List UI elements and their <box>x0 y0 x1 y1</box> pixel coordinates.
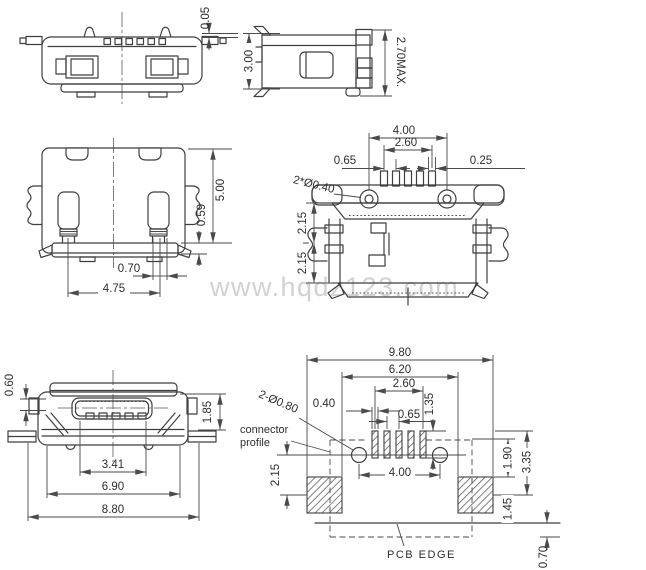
base-plate <box>52 243 178 257</box>
label-profile-line1: connector <box>240 424 289 436</box>
mount-foot <box>39 245 52 258</box>
dim-label-inner-width: 6.20 <box>389 364 411 376</box>
view-c-rear-elevation: 5.00 0.59 0.70 4.75 <box>27 138 232 297</box>
front-lip <box>332 203 484 219</box>
shield-clip <box>371 223 386 233</box>
dim-label-opening-height: 1.85 <box>202 401 214 423</box>
dim-label-upper: 2.15 <box>297 212 309 234</box>
smt-pin <box>417 171 424 186</box>
label-pcb-edge-text: PCB EDGE <box>387 549 456 561</box>
drawing-sheet: www.hqdz123.com 0.05 <box>0 0 646 570</box>
view-e-front-elevation: 0.60 1.85 3.41 6.90 8.80 <box>4 370 226 521</box>
signal-pad <box>408 431 414 458</box>
dim-0.25: 0.25 <box>417 155 525 170</box>
smt-pin <box>429 171 436 186</box>
dim-1.45: 1.45 <box>502 495 515 523</box>
dim-label-pin-span: 2.60 <box>395 137 417 149</box>
label-profile-line2: profile <box>240 437 270 449</box>
top-lug <box>84 27 95 37</box>
dim-label-hole-offset: 2.15 <box>270 464 282 486</box>
dim-label-tab: 0.60 <box>4 374 16 396</box>
mount-pad <box>307 477 342 513</box>
signal-pad <box>420 431 426 458</box>
top-notch <box>139 148 161 160</box>
dim-2.70max: 2.70MAX. <box>360 30 406 96</box>
smt-pin <box>381 171 388 186</box>
dim-label-pad-center-offset: 3.35 <box>522 451 534 473</box>
technical-drawing-svg: www.hqdz123.com 0.05 <box>0 0 646 570</box>
dim-4.00: 4.00 <box>359 464 440 479</box>
mount-pad <box>458 477 493 513</box>
dim-label-hole-dia: 2-Ø0.80 <box>257 389 300 416</box>
signal-pad <box>396 431 402 458</box>
top-lug <box>160 27 171 37</box>
contact <box>58 192 79 229</box>
smt-pin <box>393 171 400 186</box>
dim-label-pad-width: 0.40 <box>313 398 335 410</box>
dim-hole-dia: 2*Ø0.40 <box>292 174 361 197</box>
dim-hole-dia: 2-Ø0.80 <box>257 389 353 450</box>
contact <box>148 192 169 229</box>
rivet-hole <box>438 190 456 208</box>
dim-3.00: 3.00 <box>243 34 281 90</box>
dim-0.60: 0.60 <box>4 374 46 426</box>
solder-pin <box>346 88 360 96</box>
dim-label-total-width: 8.80 <box>102 504 124 516</box>
dim-2.15: 2.15 <box>270 441 307 509</box>
dim-0.65: 0.65 <box>334 155 410 170</box>
dim-label-pin-width: 0.25 <box>470 155 492 167</box>
dim-label-pin-pitch: 0.65 <box>334 155 356 167</box>
dim-label-edge-offset: 1.45 <box>503 498 515 520</box>
smt-pin <box>405 171 412 186</box>
dim-2.60: 2.60 <box>384 137 432 168</box>
signal-pad <box>372 431 378 458</box>
view-a-rear-elevation: 0.05 <box>20 7 238 104</box>
dim-0.70: 0.70 <box>538 510 560 568</box>
dim-label-pad-top-offset: 1.90 <box>503 447 515 469</box>
dim-label-total-width: 9.80 <box>389 347 411 359</box>
dim-label-pin-span: 2.60 <box>393 378 415 390</box>
label-pcb-edge: PCB EDGE <box>387 524 456 561</box>
dim-1.35: 1.35 <box>424 393 446 470</box>
side-spring <box>27 186 42 225</box>
view-f-pcb-footprint: 9.80 6.20 2.60 0.40 0.65 1.35 <box>240 347 560 568</box>
dim-label-gap: 0.05 <box>200 7 212 29</box>
dim-4.75: 4.75 <box>68 238 160 297</box>
board-lock-spring <box>489 228 508 261</box>
dim-label-pad-height: 1.35 <box>424 393 436 415</box>
dim-label-hole-span: 4.00 <box>389 467 411 479</box>
dim-label-height: 5.00 <box>215 179 227 201</box>
dim-5.00: 5.00 <box>181 149 232 243</box>
dim-label-shell-width: 6.90 <box>102 481 124 493</box>
dim-1.90: 1.90 <box>472 439 515 477</box>
dim-label-opening-width: 3.41 <box>102 459 124 471</box>
body-outline <box>262 35 370 88</box>
dim-label-pin-pitch: 0.65 <box>398 409 420 421</box>
signal-pad <box>384 431 390 458</box>
view-b-side-elevation: 3.00 2.70MAX. <box>243 27 407 97</box>
dim-label-hole-span: 4.00 <box>393 125 415 137</box>
rivet-hole <box>360 190 378 208</box>
dim-label-foot-height: 0.59 <box>196 204 208 226</box>
dim-label-foot-span: 4.75 <box>103 283 125 295</box>
dim-0.70: 0.70 <box>118 238 187 280</box>
top-notch <box>66 148 88 160</box>
dim-label-lower: 2.15 <box>297 252 309 274</box>
dim-0.05: 0.05 <box>200 7 238 50</box>
dim-label-overhang: 0.70 <box>538 546 550 568</box>
dim-label-max-height: 2.70MAX. <box>394 37 406 88</box>
board-lock-spring <box>308 228 327 261</box>
dim-label-height: 3.00 <box>244 50 256 72</box>
dim-label-hole-dia: 2*Ø0.40 <box>292 174 336 196</box>
dim-label-foot-width: 0.70 <box>118 263 140 275</box>
